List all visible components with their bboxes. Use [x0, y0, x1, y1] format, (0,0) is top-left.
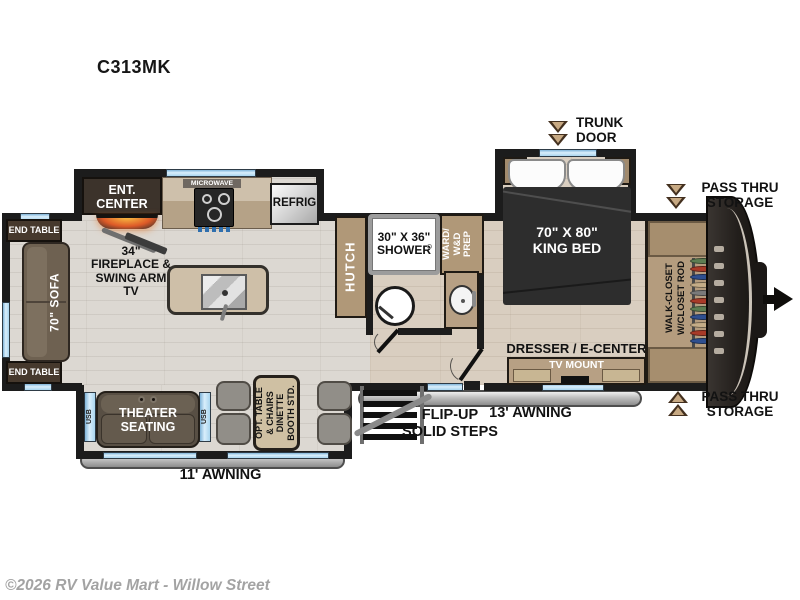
shower: 30" X 36" SHOWER — [368, 214, 440, 275]
window-bed-slide — [539, 149, 597, 157]
dinette-table-label: OPT. TABLE & CHAIRS DINETTE BOOTH STD. — [254, 375, 300, 451]
bed-slide-wall-left — [495, 149, 503, 221]
burner — [218, 193, 230, 205]
burner — [207, 207, 222, 222]
theater-seating-label: THEATER SEATING — [96, 406, 200, 434]
sink-drain — [222, 290, 228, 296]
cooktop-stove — [194, 188, 234, 227]
pass-thru-top-arrow-icon — [666, 184, 686, 196]
usb-window-left: USB — [84, 392, 96, 442]
front-cap-grab-rail — [714, 246, 726, 358]
kitchen-island — [167, 265, 269, 315]
rail-rung — [714, 280, 724, 286]
dresser-label: DRESSER / E-CENTER — [504, 342, 649, 357]
bench-cushion — [317, 413, 352, 445]
pass-thru-top-arrow-icon — [666, 197, 686, 209]
refrigerator: REFRIG — [270, 183, 319, 225]
window-kitchen-slide — [166, 169, 256, 177]
bathroom-vanity — [444, 271, 479, 329]
rail-rung — [714, 348, 724, 354]
hitch-coupler — [774, 287, 793, 311]
pass-thru-storage-top-label: PASS THRU STORAGE — [692, 180, 788, 210]
rail-rung — [714, 331, 724, 337]
trunk-door-arrow-icon — [548, 121, 568, 133]
floorplan-page: C313MK ©2026 RV Value Mart - Willow Stre… — [0, 0, 800, 600]
bed-fold-line — [503, 190, 631, 214]
vanity-drain — [461, 299, 465, 303]
rail-rung — [714, 246, 724, 252]
awning-11-label: 11' AWNING — [158, 467, 283, 483]
sofa-label: 70" SOFA — [42, 244, 68, 360]
usb-left-label: USB — [85, 393, 95, 441]
bathroom-door-arc — [374, 330, 400, 354]
window-slide-dinette — [227, 452, 329, 459]
end-table-bottom-label: END TABLE — [8, 367, 60, 377]
stove-knobs — [198, 227, 231, 232]
king-bed: 70" X 80" KING BED — [503, 187, 631, 305]
toilet-seat-line — [378, 306, 394, 320]
mounted-tv — [561, 376, 589, 384]
step — [363, 390, 417, 396]
tv-mount-label: TV MOUNT — [509, 360, 644, 372]
sofa: 70" SOFA — [22, 242, 70, 362]
rail-rung — [714, 263, 724, 269]
plan-title: C313MK — [97, 57, 171, 77]
fireplace — [96, 214, 158, 229]
usb-window-right: USB — [199, 392, 211, 442]
dresser-e-center: TV MOUNT — [507, 357, 646, 385]
hutch: HUTCH — [335, 216, 367, 318]
kitchen-slide-wall-left — [74, 169, 82, 221]
window-slide-theater — [103, 452, 197, 459]
rail-rung — [714, 314, 724, 320]
trunk-door-arrow-icon — [548, 134, 568, 146]
end-table-top: END TABLE — [6, 219, 62, 242]
bench-cushion — [216, 413, 251, 445]
entertainment-center: ENT. CENTER — [82, 177, 162, 215]
wall-top-c — [628, 213, 714, 221]
window-rear — [2, 302, 10, 358]
entry-door-stub — [464, 381, 480, 390]
end-table-bottom: END TABLE — [6, 361, 62, 384]
ward-label: WARD/ W&D PREP — [442, 214, 482, 274]
end-table-top-label: END TABLE — [8, 225, 60, 235]
hutch-label: HUTCH — [337, 218, 365, 316]
microwave-label: MICROWAVE — [183, 179, 241, 188]
shower-drain — [427, 244, 432, 249]
usb-right-label: USB — [200, 393, 210, 441]
burner — [202, 194, 212, 204]
rail-rung — [714, 297, 724, 303]
cup-holder — [138, 396, 145, 403]
trunk-door-label: TRUNK DOOR — [576, 115, 623, 145]
pass-thru-storage-bottom-label: PASS THRU STORAGE — [692, 389, 788, 419]
dinette-bench-right — [317, 381, 352, 445]
watermark: ©2026 RV Value Mart - Willow Street — [5, 577, 270, 594]
window-entry — [427, 383, 463, 391]
bench-cushion — [216, 381, 251, 411]
refrig-label: REFRIG — [272, 197, 317, 210]
window-bottom-end-table — [24, 383, 52, 391]
dinette-bench-left — [216, 381, 251, 445]
pass-thru-bottom-arrow-icon — [668, 391, 688, 403]
vanity-faucet — [472, 291, 476, 307]
bed-fold-line — [503, 278, 631, 295]
pass-thru-bottom-arrow-icon — [668, 404, 688, 416]
sofa-slide-wall-left — [76, 385, 84, 459]
toilet — [375, 286, 415, 326]
cup-holder — [150, 396, 157, 403]
closet-label: WALK-CLOSET W/CLOSET ROD — [664, 243, 690, 353]
bench-cushion — [317, 381, 352, 411]
steps-label: FLIP-UP SOLID STEPS — [396, 407, 504, 442]
ent-center-label: ENT. CENTER — [84, 183, 160, 211]
bath-wall-bottom — [398, 328, 452, 335]
king-bed-label: 70" X 80" KING BED — [503, 225, 631, 256]
